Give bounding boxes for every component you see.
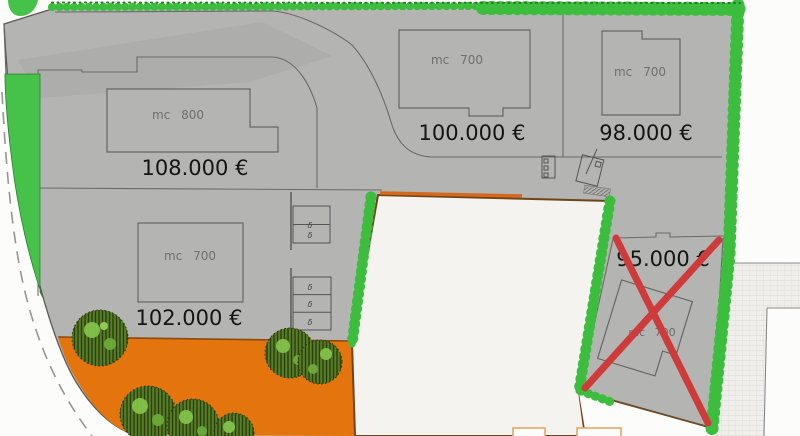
building-label-lot-1: mc 800 [152,108,204,122]
stall-symbol: δ [308,300,313,309]
site-plan-drawing: δ δ δ δ δ [0,0,800,436]
outside-area-top-right [733,0,800,263]
price-label-lot-4: 102.000 € [136,306,243,330]
building-label-lot-4: mc 700 [164,249,216,263]
hedge-top [52,6,483,7]
stall-symbol: δ [308,318,313,327]
tree-icon [298,340,342,384]
stall-symbol: δ [308,221,313,230]
price-label-lot-1: 108.000 € [142,156,249,180]
price-label-lot-2: 100.000 € [419,121,526,145]
hedge-top-right-bumps [483,8,741,9]
building-lot-2 [399,30,530,116]
excluded-lot [352,195,610,436]
tree-icon [72,310,128,366]
building-label-lot-3: mc 700 [614,65,666,79]
stall-symbol: δ [308,283,313,292]
price-label-lot-3: 98.000 € [599,121,693,145]
site-plan-page: δ δ δ δ δ [0,0,800,436]
building-label-lot-2: mc 700 [431,53,483,67]
stall-symbol: δ [308,231,313,240]
